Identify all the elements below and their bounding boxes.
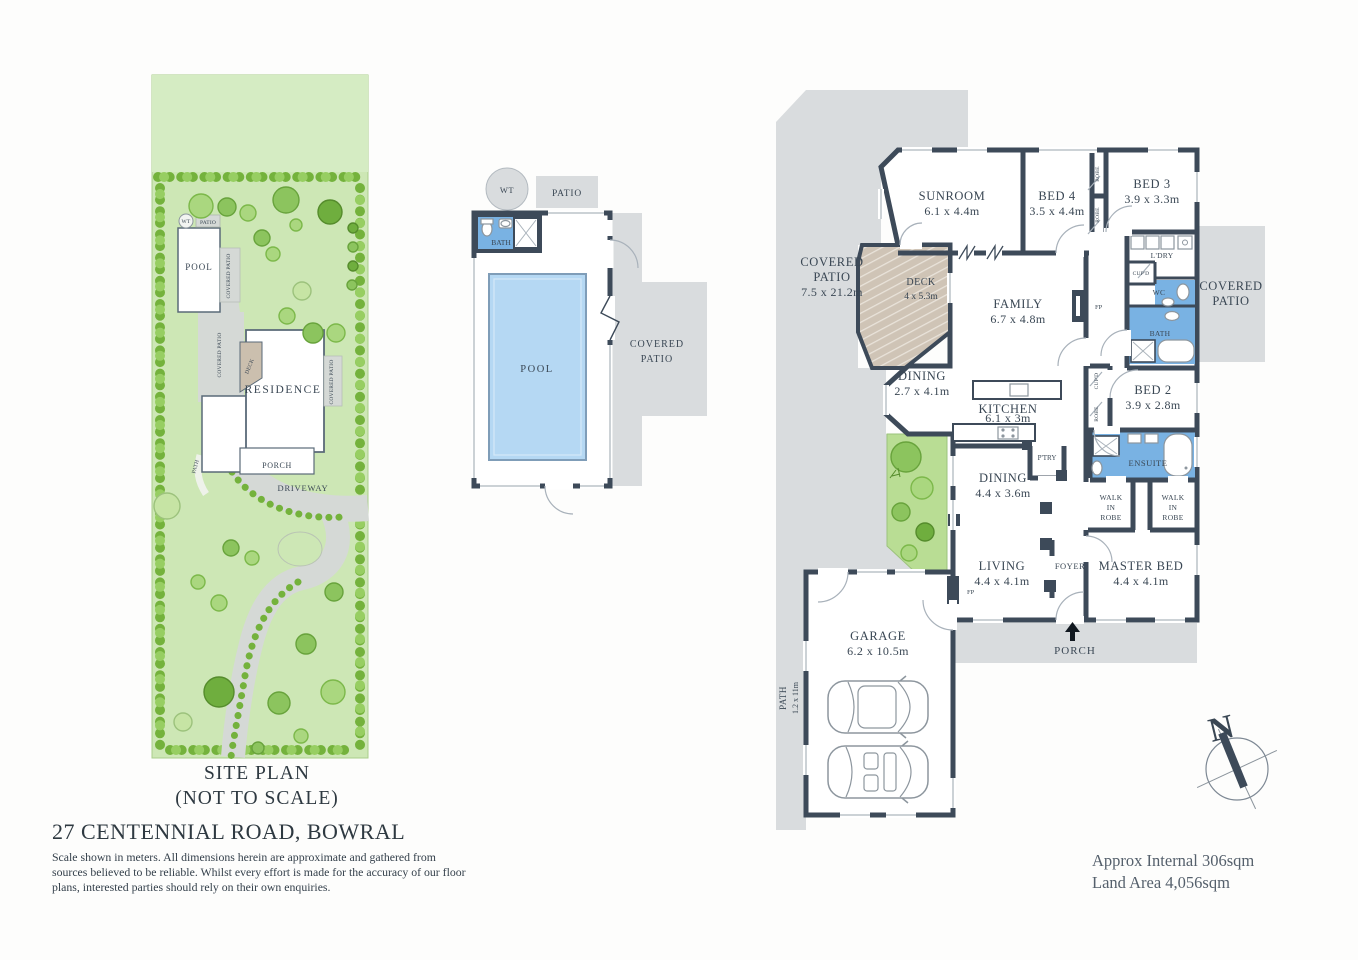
land-area-label: Land Area 4,056sqm: [1092, 873, 1230, 892]
room-living-label: LIVING: [979, 559, 1026, 573]
wir2-l3: ROBE: [1162, 513, 1183, 522]
sink: [1165, 312, 1179, 321]
fp-label-family: FP: [1095, 304, 1103, 311]
kitchen-bench: [953, 424, 1035, 441]
site-driveway-label: DRIVEWAY: [278, 483, 329, 493]
room-dining-bay-label: DINING: [898, 369, 946, 383]
covered-patio-right-l1: COVERED: [1199, 279, 1262, 293]
foyer-label: FOYER: [1055, 561, 1085, 571]
site-patio-label: PATIO: [200, 220, 216, 226]
pool-patio-label: PATIO: [552, 189, 582, 199]
room-master-dims: 4.4 x 4.1m: [1113, 574, 1169, 588]
car-convertible: [828, 741, 928, 803]
room-garage-dims: 6.2 x 10.5m: [847, 644, 909, 658]
compass: N: [1179, 708, 1296, 828]
wir2-l1: WALK: [1162, 493, 1185, 502]
site-covered-patio-right-label: COVERED PATIO: [329, 359, 335, 404]
ensuite-bathtub: [1164, 434, 1192, 476]
pool-covered-patio-l1: COVERED: [630, 339, 684, 350]
room-bed3-dims: 3.9 x 3.3m: [1124, 192, 1180, 206]
wir1-l1: WALK: [1100, 493, 1123, 502]
site-covered-patio-label: COVERED PATIO: [226, 253, 232, 298]
site-plan-subtitle: (NOT TO SCALE): [175, 788, 339, 809]
covered-patio-left-dims: 7.5 x 21.2m: [801, 285, 863, 299]
room-sunroom-label: SUNROOM: [919, 189, 986, 203]
porch-label: PORCH: [1054, 645, 1096, 657]
room-bed2-label: BED 2: [1134, 383, 1171, 397]
robe-label-2: ROBE: [1095, 207, 1101, 223]
cupd-label-2: CUP'D: [1094, 373, 1100, 390]
wir1-l2: IN: [1107, 503, 1116, 512]
pool-label: POOL: [520, 364, 553, 375]
ldry-label: L'DRY: [1151, 251, 1174, 260]
room-dining-label: DINING: [979, 471, 1027, 485]
disclaimer-line3: plans, interested parties should rely on…: [52, 880, 331, 894]
floor-plan: COVERED PATIO 7.5 x 21.2m SUNROOM 6.1 x …: [776, 90, 1265, 830]
room-bed3-label: BED 3: [1133, 177, 1170, 191]
room-master-label: MASTER BED: [1099, 559, 1184, 573]
site-wt-label: WT: [182, 219, 191, 225]
room-garage-label: GARAGE: [850, 629, 906, 643]
site-residence-label: RESIDENCE: [245, 384, 322, 396]
site-covered-patio-left-label: COVERED PATIO: [217, 332, 223, 377]
deck: [858, 245, 950, 368]
pool-bath-label: BATH: [491, 238, 511, 247]
site-pool-label: POOL: [185, 262, 213, 272]
room-dining-bay-dims: 2.7 x 4.1m: [894, 384, 950, 398]
ensuite-toilet: [1092, 461, 1102, 475]
site-plan-title: SITE PLAN: [204, 763, 310, 784]
floorplan-sheet: WT PATIO POOL COVERED PATIO COVERED PATI…: [0, 0, 1358, 960]
site-top-field: [152, 75, 368, 172]
wc-label: WC: [1153, 288, 1166, 297]
stove: [998, 427, 1018, 439]
room-sunroom-dims: 6.1 x 4.4m: [924, 204, 980, 218]
room-bed2-dims: 3.9 x 2.8m: [1125, 398, 1181, 412]
ensuite-label: ENSUITE: [1129, 458, 1168, 468]
cupd-label-1: CUP'D: [1133, 271, 1150, 277]
pool-plan: WT PATIO BATH POOL COVERED PATIO: [474, 168, 707, 514]
covered-patio-right-l2: PATIO: [1212, 294, 1249, 308]
robe-label-3: ROBE: [1094, 406, 1100, 422]
disclaimer-line1: Scale shown in meters. All dimensions he…: [52, 850, 436, 864]
car-coupe: [828, 676, 928, 738]
site-porch-label: PORCH: [262, 461, 292, 470]
path-label: PATH: [778, 686, 788, 710]
room-deck-dims: 4 x 5.3m: [904, 292, 938, 302]
site-plan: WT PATIO POOL COVERED PATIO COVERED PATI…: [152, 75, 368, 809]
sink: [501, 221, 510, 227]
wir2-l2: IN: [1169, 503, 1178, 512]
bath-label: BATH: [1150, 329, 1171, 338]
wir1-l3: ROBE: [1100, 513, 1121, 522]
laundry-fixtures: [1131, 236, 1192, 249]
room-bed4-label: BED 4: [1038, 189, 1076, 203]
robe-label-1: ROBE: [1095, 166, 1101, 182]
room-bed4-dims: 3.5 x 4.4m: [1029, 204, 1085, 218]
disclaimer-line2: sources believed to be reliable. Whilst …: [52, 865, 466, 879]
bathtub: [1158, 340, 1194, 362]
room-family-label: FAMILY: [993, 297, 1042, 311]
room-family-dims: 6.7 x 4.8m: [990, 312, 1046, 326]
fp-label-living: FP: [967, 589, 975, 596]
garden-patch: [887, 434, 947, 572]
floorplan-canvas: WT PATIO POOL COVERED PATIO COVERED PATI…: [0, 0, 1358, 960]
room-kitchen-dims: 6.1 x 3m: [985, 411, 1031, 425]
address-title: 27 CENTENNIAL ROAD, BOWRAL: [52, 819, 405, 844]
pool-wt-label: WT: [500, 185, 515, 195]
covered-patio-left-l1: COVERED: [800, 255, 863, 269]
fireplace-living: [947, 576, 959, 604]
path-dims: 1.2 x 11m: [791, 681, 800, 714]
room-dining-dims: 4.4 x 3.6m: [975, 486, 1031, 500]
toilet: [1177, 284, 1189, 300]
pool-covered-patio-l2: PATIO: [641, 354, 673, 365]
ptry-label: P'TRY: [1038, 454, 1057, 462]
room-living-dims: 4.4 x 4.1m: [974, 574, 1030, 588]
compass-north-label: N: [1205, 708, 1238, 750]
internal-area-label: Approx Internal 306sqm: [1092, 851, 1254, 870]
room-deck-label: DECK: [906, 277, 936, 288]
covered-patio-left-l2: PATIO: [813, 270, 850, 284]
footer: 27 CENTENNIAL ROAD, BOWRAL Scale shown i…: [52, 819, 1254, 894]
washer: [1178, 236, 1192, 249]
kitchen-sink: [1010, 384, 1028, 396]
